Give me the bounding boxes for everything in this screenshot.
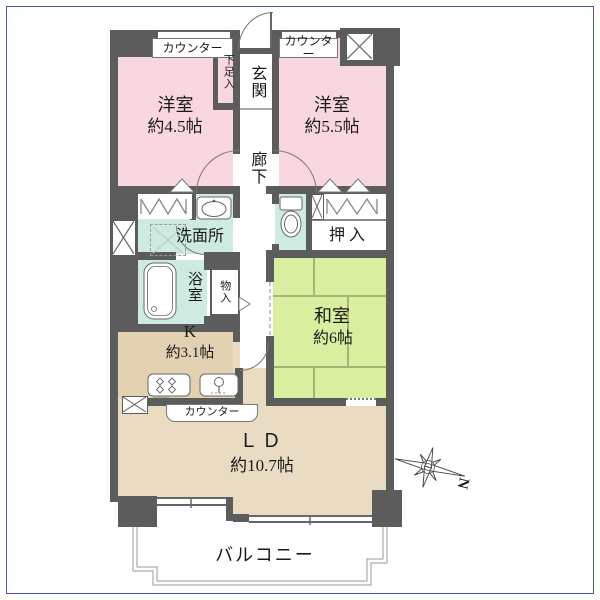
japanese-room-size: 約6帖 xyxy=(296,328,370,350)
bedroom-left-name: 洋室 xyxy=(128,94,223,116)
living-dining-name: ＬＤ xyxy=(210,430,314,454)
counter-right-label: カウンター xyxy=(280,35,337,60)
wall-bottom-step xyxy=(226,497,233,521)
shaft-x-mark xyxy=(347,34,372,59)
counter-kitchen-label: カウンター xyxy=(185,407,240,419)
tatami-line xyxy=(313,258,315,296)
counter-right: カウンター xyxy=(279,38,338,58)
counter-left-label: カウンター xyxy=(162,42,222,55)
floorplan-canvas: カウンター カウンター カウンター 洋室 約4.5帖 洋室 約5.5帖 玄関 下… xyxy=(0,0,600,600)
folding-door-mark xyxy=(344,178,372,193)
washbasin-icon xyxy=(196,196,232,220)
compass-north-label: N xyxy=(454,476,472,491)
kitchen-size: 約3.1帖 xyxy=(142,344,238,364)
shaft-x-mark xyxy=(123,397,146,412)
folding-door-mark xyxy=(316,178,344,193)
bathroom-label: 浴室 xyxy=(184,264,202,310)
sliding-door-washitsu xyxy=(267,282,273,336)
wall-washitsu-ld-stub xyxy=(376,398,394,406)
wall-washitsu-left xyxy=(266,258,274,282)
storage-label: 物入 xyxy=(216,272,232,312)
corridor-label: 廊下 xyxy=(247,140,265,196)
closet-left xyxy=(138,194,192,219)
entrance-step-line xyxy=(240,108,272,110)
bedroom-right-name: 洋室 xyxy=(287,94,377,116)
window-mullion xyxy=(157,499,226,508)
folding-door-mark xyxy=(168,178,196,193)
shaft-x-mark xyxy=(113,221,134,254)
wall-left-thick xyxy=(110,192,138,332)
pipe-shaft-left xyxy=(112,220,136,256)
shaft-x-mark xyxy=(312,195,322,218)
wall-corridor-right xyxy=(272,38,279,112)
pipe-shaft-top-right xyxy=(346,33,374,61)
entrance-label: 玄関 xyxy=(247,56,265,108)
tatami-line xyxy=(313,367,315,400)
wall-washitsu-ld xyxy=(266,398,346,406)
shoe-cabinet-label: 下足入 xyxy=(219,42,236,102)
entrance-door-leaf xyxy=(270,12,272,49)
column-top-left xyxy=(112,30,152,57)
tatami-line xyxy=(272,366,386,368)
bedroom-left-size: 約4.5帖 xyxy=(120,116,230,138)
tatami-line xyxy=(272,295,386,297)
wall-oshiire-washitsu xyxy=(266,250,394,258)
kitchen-sink-icon xyxy=(198,372,240,400)
hanger-rod-symbol xyxy=(138,194,192,219)
counter-kitchen: カウンター xyxy=(166,404,258,422)
balcony-outline xyxy=(120,520,400,595)
kitchen-name: K xyxy=(152,322,228,342)
hanger-rod-symbol xyxy=(324,194,386,219)
stove-icon xyxy=(146,372,192,400)
pipe-shaft-mid xyxy=(311,194,324,220)
compass-rose: N xyxy=(388,428,498,508)
bathtub-icon xyxy=(143,262,177,320)
storage-door-mark xyxy=(238,295,252,313)
wall-left-lower xyxy=(110,330,118,502)
oshiire-label: 押入 xyxy=(312,224,386,248)
closet-right xyxy=(324,194,386,219)
living-dining-size: 約10.7帖 xyxy=(198,455,326,477)
japanese-room-name: 和室 xyxy=(300,304,364,328)
toilet-icon xyxy=(277,196,305,242)
window-bottom-left xyxy=(157,497,226,506)
washitsu-ld-opening xyxy=(346,398,376,406)
washroom-label: 洗面所 xyxy=(160,226,240,248)
pipe-shaft-kitchen xyxy=(122,396,148,414)
bedroom-right-size: 約5.5帖 xyxy=(277,116,387,138)
sliding-door-dashes xyxy=(267,282,273,336)
